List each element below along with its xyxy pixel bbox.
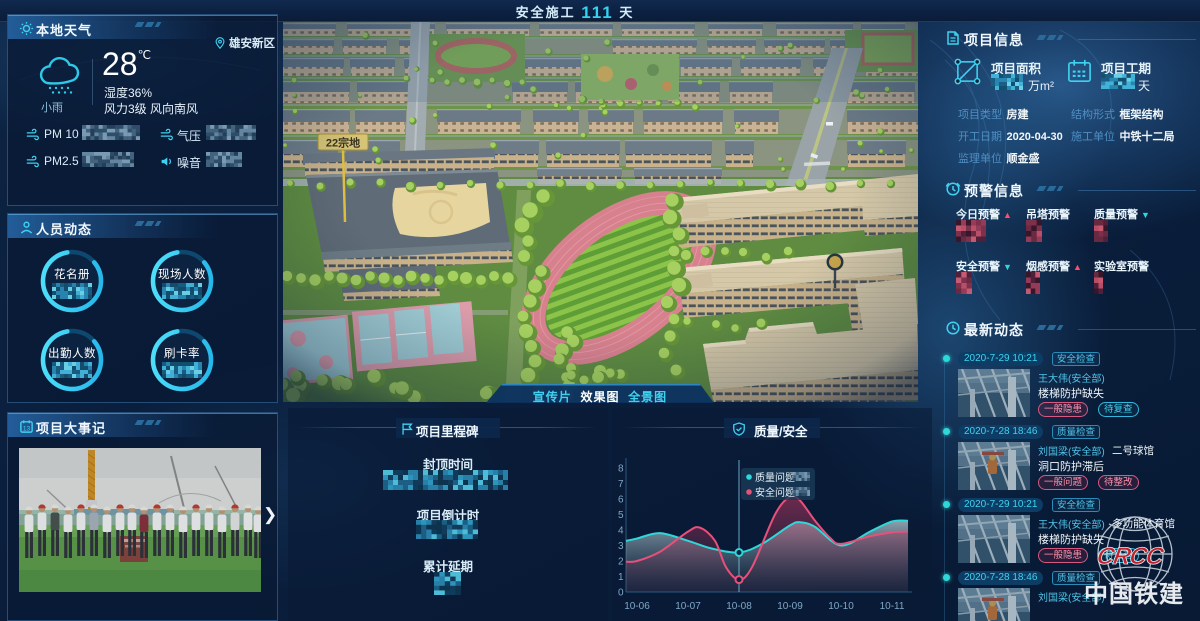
svg-text:7: 7: [618, 479, 624, 490]
svg-text:2: 2: [618, 557, 624, 568]
svg-text:10-10: 10-10: [828, 601, 854, 612]
svg-text:13: 13: [23, 425, 31, 432]
svg-text:安全问题: 安全问题: [755, 486, 795, 499]
svg-text:8: 8: [618, 464, 624, 475]
svg-text:10-07: 10-07: [675, 601, 701, 612]
svg-text:5: 5: [618, 510, 624, 521]
svg-text:10-09: 10-09: [777, 601, 803, 612]
svg-text:中国铁建: 中国铁建: [1084, 581, 1184, 608]
svg-text:0: 0: [618, 588, 624, 599]
svg-text:6: 6: [618, 495, 624, 506]
svg-text:CRCC: CRCC: [1095, 543, 1167, 570]
svg-text:3: 3: [618, 541, 624, 552]
svg-text:10-08: 10-08: [726, 601, 752, 612]
svg-text:10-11: 10-11: [880, 601, 905, 612]
svg-text:10-06: 10-06: [624, 601, 650, 612]
svg-text:质量问题: 质量问题: [755, 471, 795, 484]
svg-text:4: 4: [618, 526, 624, 537]
svg-text:1: 1: [618, 572, 624, 583]
